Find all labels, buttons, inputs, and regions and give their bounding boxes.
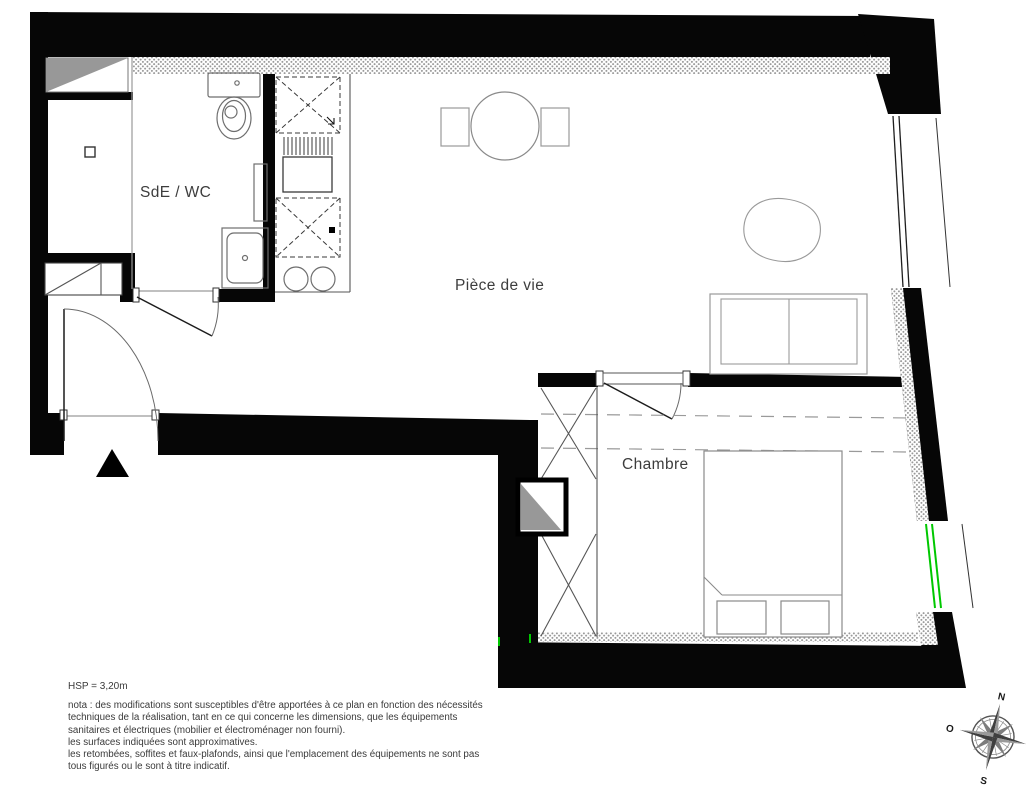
sink-with-drainer: [283, 137, 332, 192]
note-line: nota : des modifications sont susceptibl…: [68, 700, 508, 712]
appliance-space-bottom: [276, 198, 340, 257]
note-line: sanitaires et électriques (mobilier et é…: [68, 725, 508, 737]
entrance-door: [60, 309, 159, 477]
floor-plan-drawing: SdE / WC Pièce de vie Chambre N S E O: [0, 0, 1031, 800]
floor-drain-square: [85, 147, 95, 157]
kitchen: [275, 74, 350, 292]
dining-set: [441, 92, 569, 160]
living-window: [893, 116, 950, 287]
note-line: les retombées, soffites et faux-plafonds…: [68, 749, 508, 761]
wall-top: [30, 12, 870, 57]
wall-under-closet: [30, 92, 133, 100]
wall-sde-kitchen: [263, 57, 275, 302]
round-table: [471, 92, 539, 160]
wall-living-bottom: [158, 413, 530, 455]
shower-tray: [222, 228, 268, 288]
wall-partition-left: [538, 373, 598, 387]
compass-south-label: S: [979, 775, 988, 787]
socket-dot: [329, 227, 335, 233]
chair-right: [541, 108, 569, 146]
bedroom-window-green: [926, 524, 973, 608]
living-furniture: [441, 92, 867, 374]
door-direction-arrow: [327, 117, 334, 124]
entrance-arrow: [96, 449, 129, 477]
appliance-space-top: [276, 77, 340, 133]
entry-door-swing: [64, 309, 158, 441]
floor-plan-page: SdE / WC Pièce de vie Chambre N S E O HS: [0, 0, 1031, 800]
closet-diagonal: [45, 263, 122, 295]
compass-rose: N S E O: [936, 682, 1031, 797]
sofa: [710, 294, 867, 374]
note-line: techniques de la réalisation, tant en ce…: [68, 712, 508, 724]
bathroom-door: [133, 288, 219, 336]
soffit-dashed-line-1: [541, 414, 910, 418]
bedroom: [499, 371, 910, 646]
room-label-living: Pièce de vie: [455, 277, 544, 294]
pouf-rug: [744, 198, 821, 261]
wall-bottom-left-block: [30, 413, 64, 455]
note-line: tous figurés ou le sont à titre indicati…: [68, 761, 508, 773]
compass-main-points: [953, 697, 1031, 778]
wall-left: [30, 12, 48, 455]
bedroom-door: [596, 371, 690, 419]
hatch-top-band: [133, 57, 890, 74]
note-line: les surfaces indiquées sont approximativ…: [68, 737, 508, 749]
wall-partition-right: [688, 373, 911, 387]
compass-west-label: O: [945, 723, 955, 735]
double-bed: [704, 451, 842, 637]
notes-block: HSP = 3,20m nota : des modifications son…: [68, 681, 508, 774]
two-burner-hob: [284, 267, 335, 291]
ceiling-height-note: HSP = 3,20m: [68, 681, 508, 692]
wall-bedroom-bottom: [498, 642, 945, 688]
outer-face-line: [962, 524, 973, 608]
room-label-bedroom: Chambre: [622, 456, 689, 473]
compass-north-label: N: [997, 691, 1006, 703]
chair-left: [441, 108, 469, 146]
toilet: [208, 73, 260, 139]
outer-face-line: [936, 118, 950, 287]
room-label-bathroom: SdE / WC: [140, 184, 211, 201]
technical-shaft: [518, 480, 566, 534]
